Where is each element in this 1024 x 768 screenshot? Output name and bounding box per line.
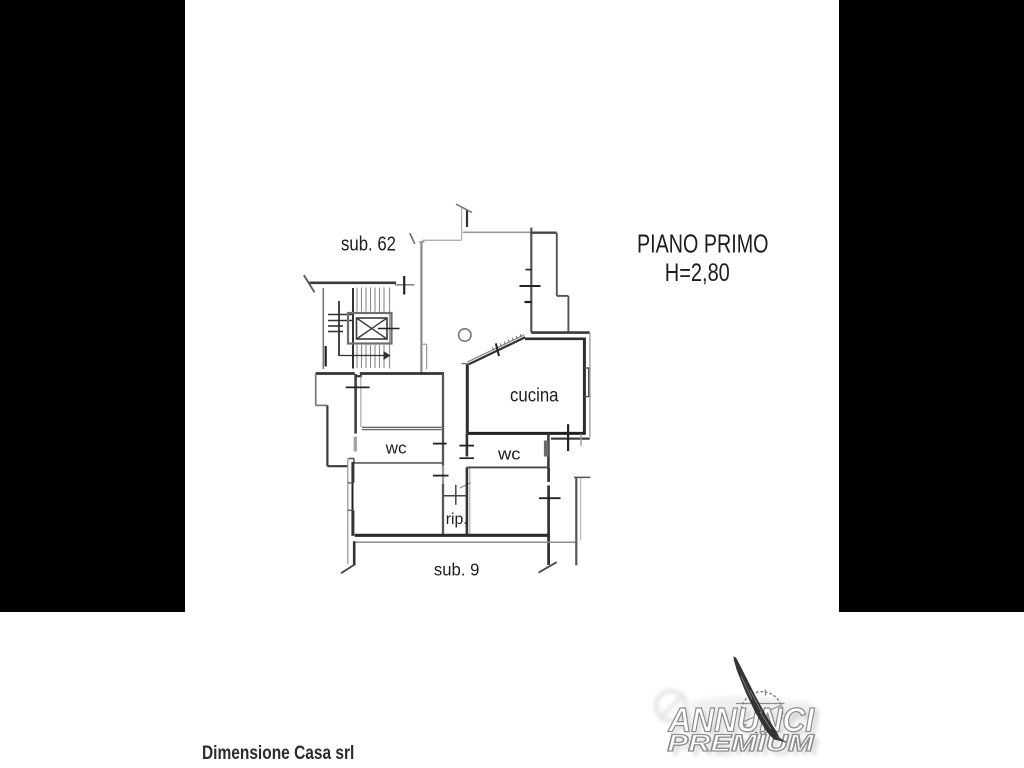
- svg-text:PIANO PRIMO: PIANO PRIMO: [637, 228, 769, 258]
- svg-text:sub. 62: sub. 62: [341, 233, 396, 256]
- svg-text:rip.: rip.: [446, 511, 468, 528]
- svg-text:H=2,80: H=2,80: [665, 259, 730, 287]
- svg-text:PREMIUM: PREMIUM: [667, 730, 815, 757]
- svg-text:sub. 9: sub. 9: [434, 560, 480, 580]
- svg-text:cucina: cucina: [510, 386, 559, 407]
- svg-text:wc: wc: [497, 446, 521, 464]
- svg-text:wc: wc: [385, 440, 407, 458]
